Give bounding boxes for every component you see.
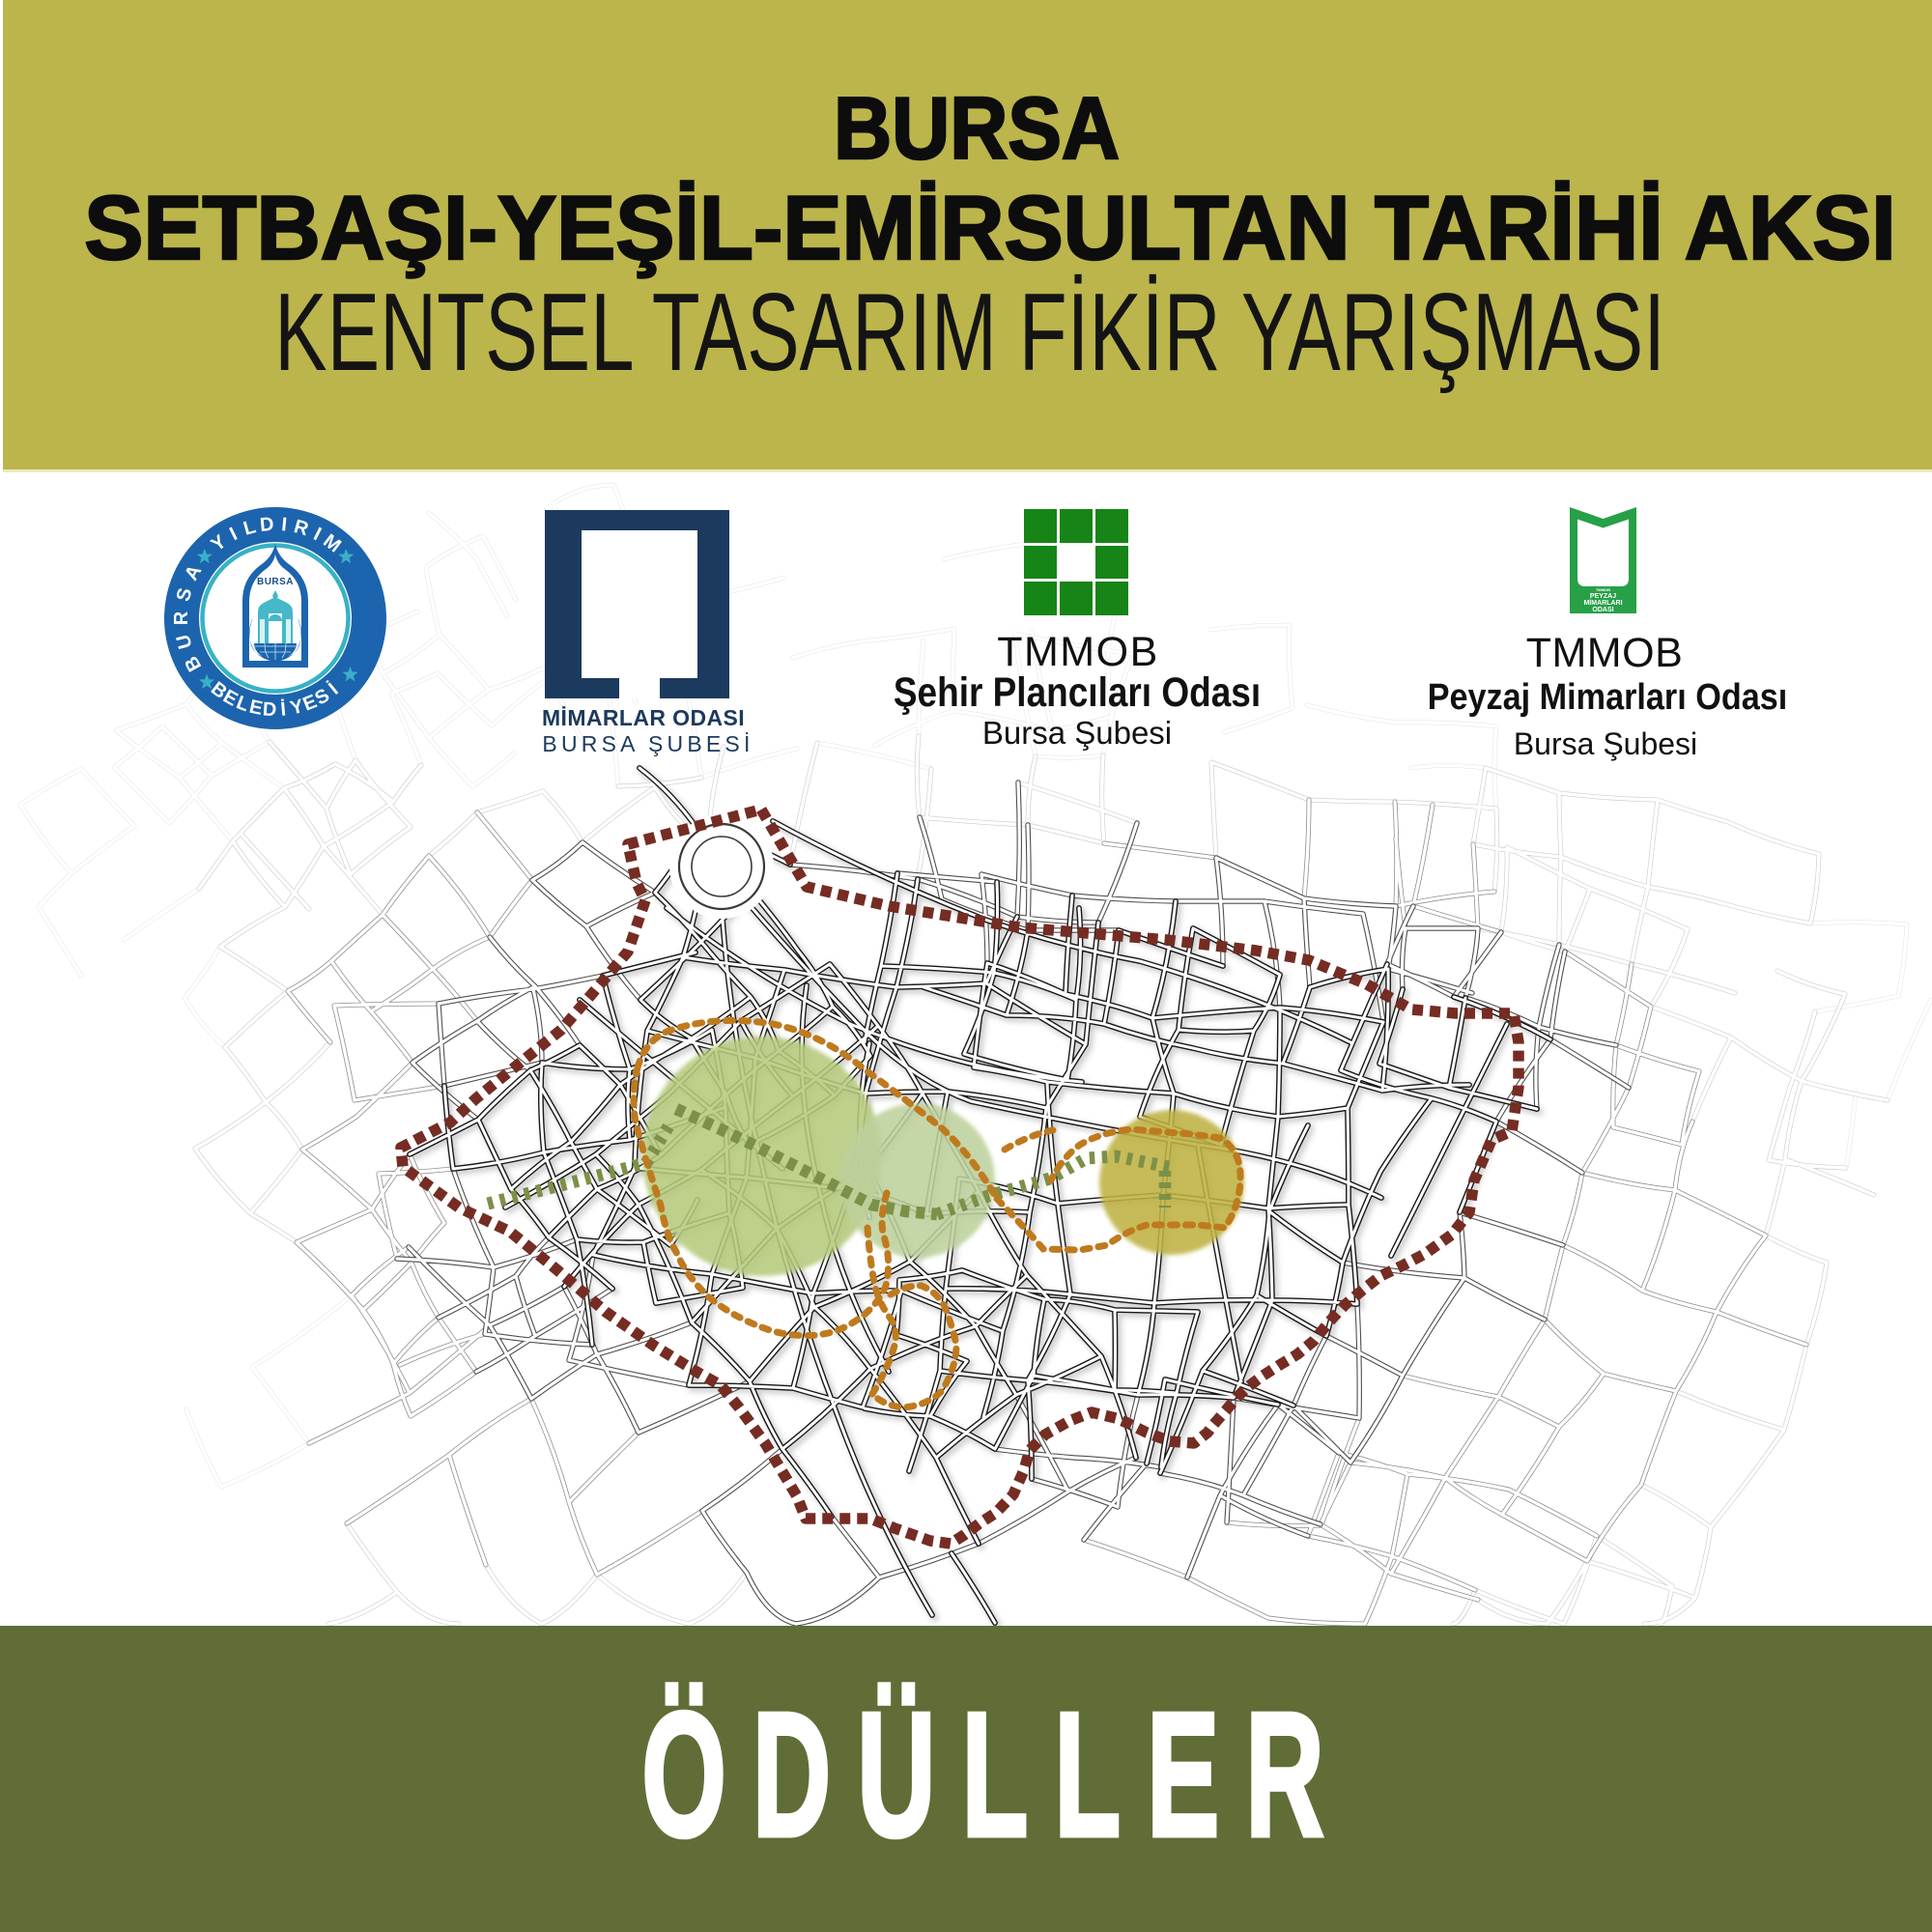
svg-text:D: D <box>262 698 277 721</box>
svg-text:MİMARLARI: MİMARLARI <box>1583 599 1622 607</box>
svg-text:D: D <box>259 514 274 536</box>
svg-text:ODASI: ODASI <box>1592 607 1613 613</box>
svg-text:BURSA: BURSA <box>257 577 294 587</box>
svg-text:TMMOB: TMMOB <box>1596 587 1610 592</box>
svg-text:R: R <box>171 611 192 625</box>
svg-text:PEYZAJ: PEYZAJ <box>1590 593 1616 600</box>
